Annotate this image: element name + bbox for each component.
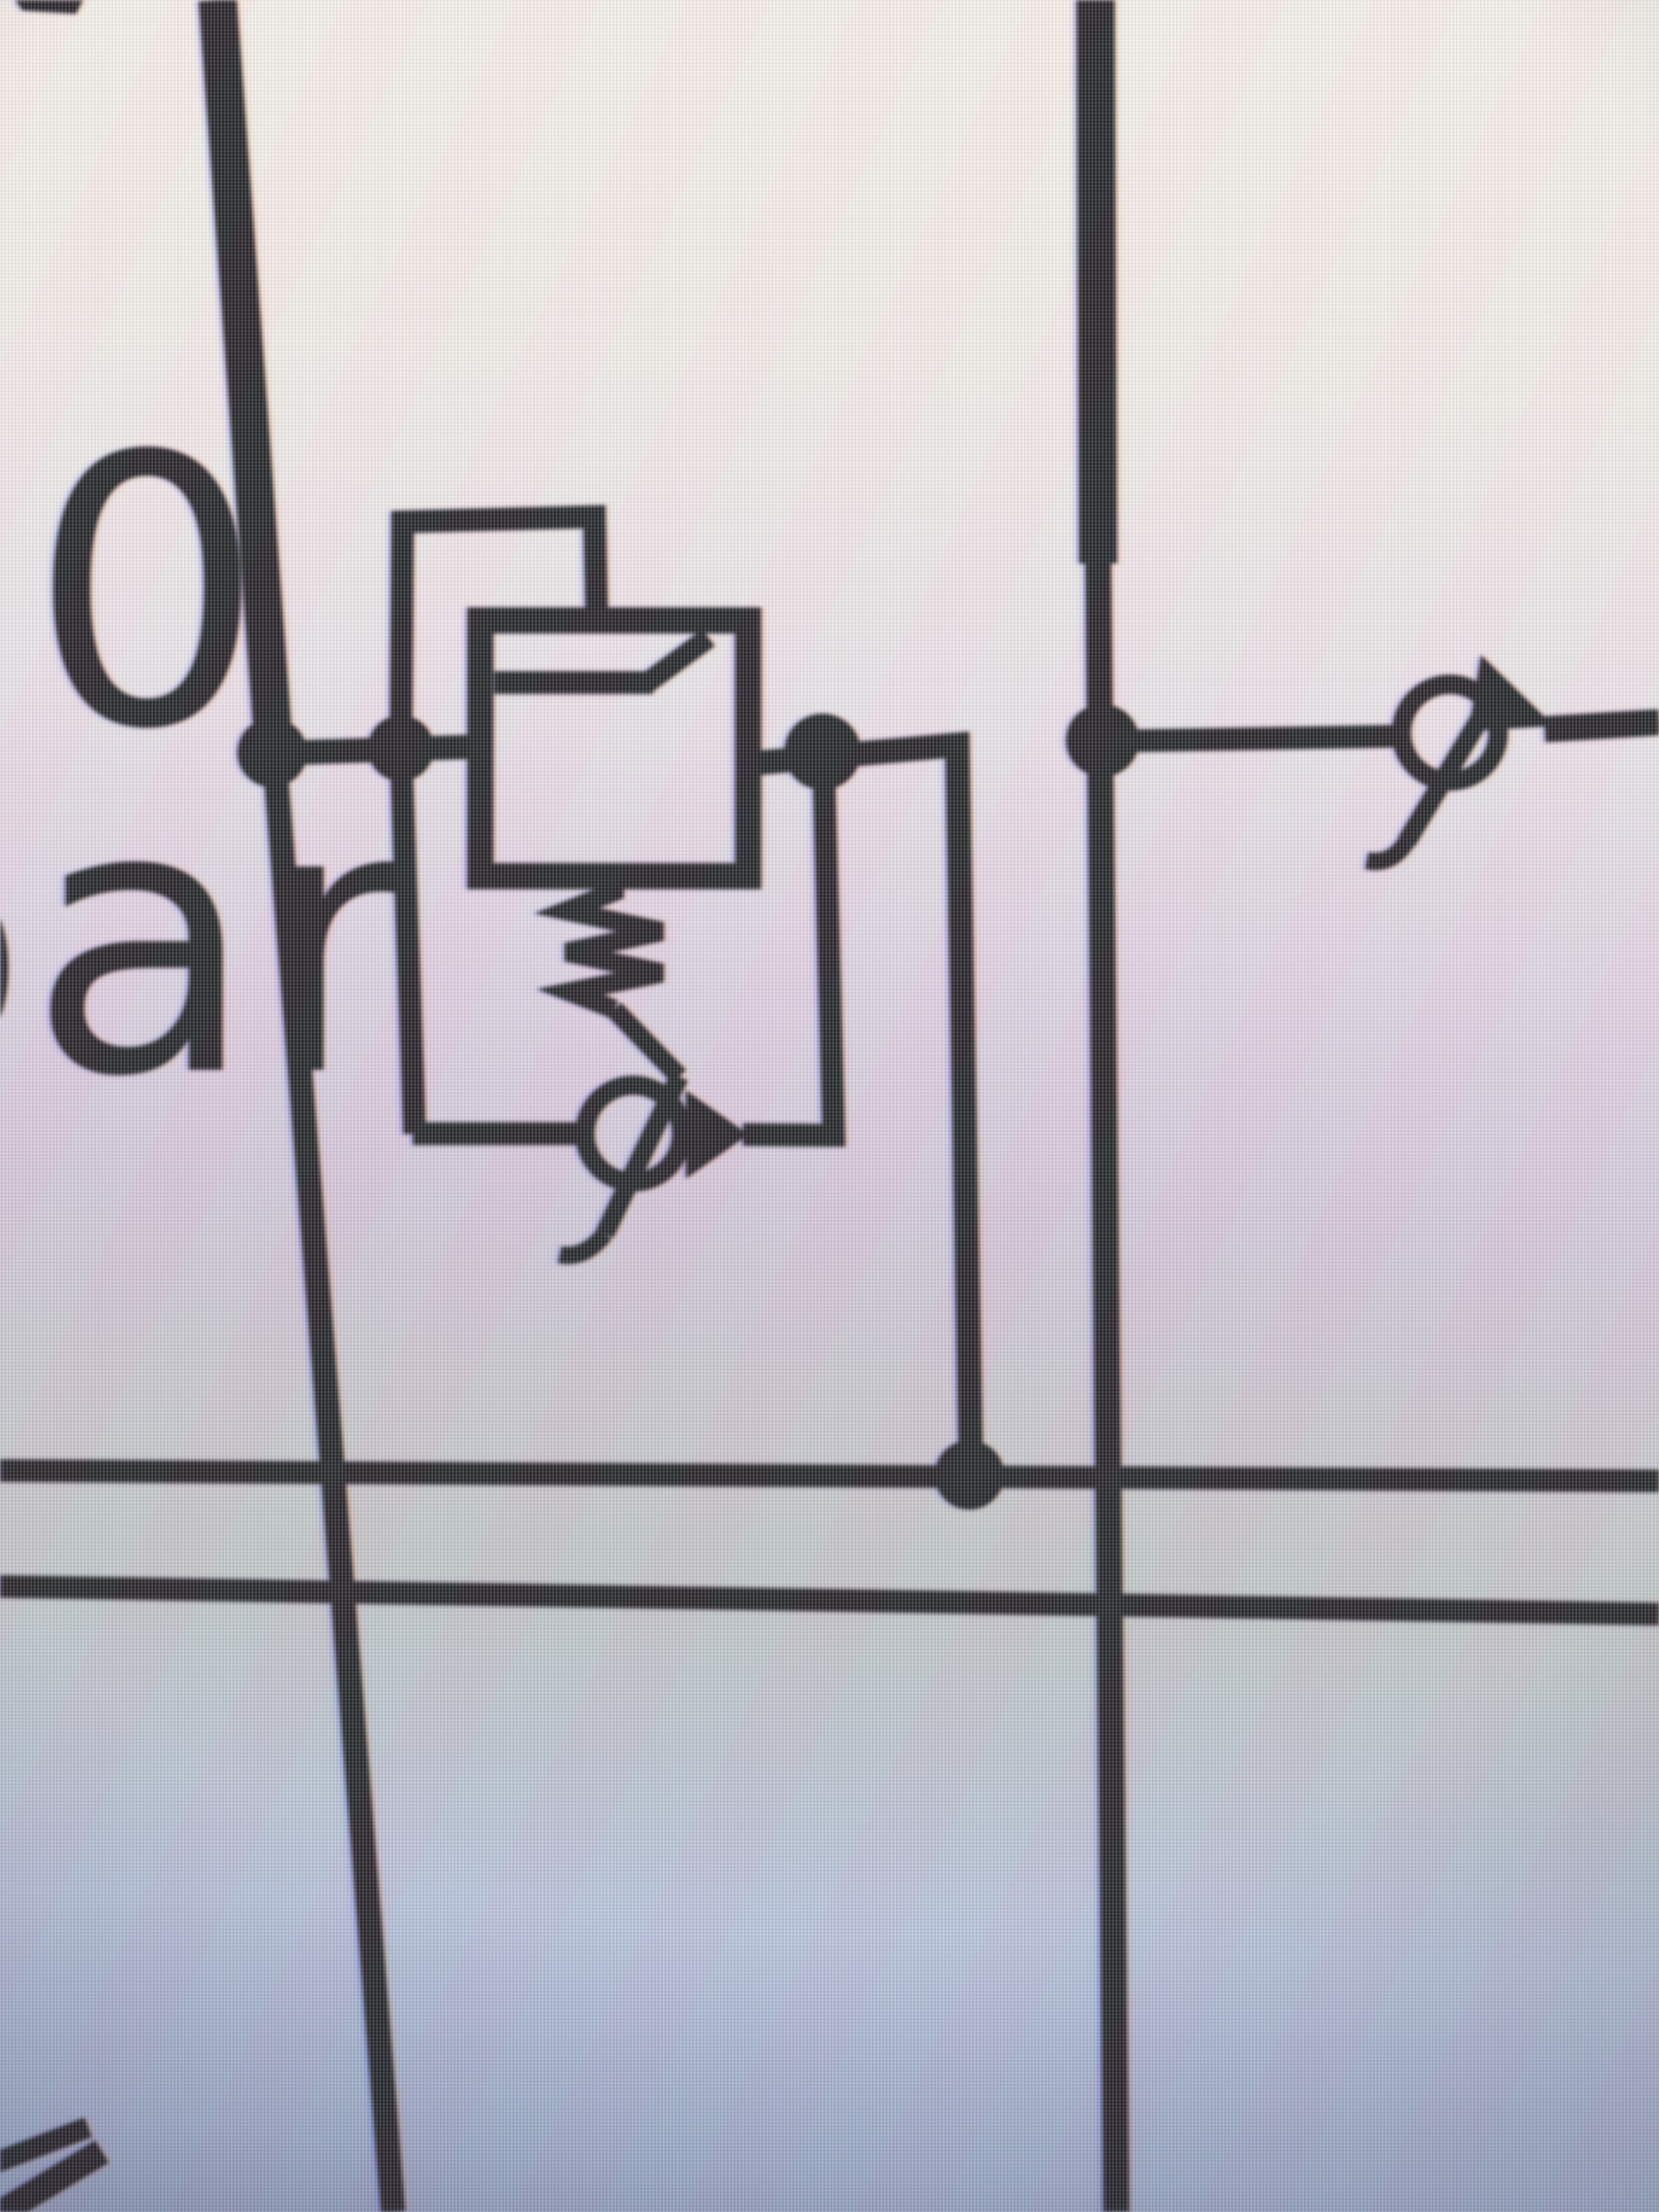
photo-vignette xyxy=(0,0,1659,2212)
screen-photo: 50 bar xyxy=(0,0,1659,2212)
